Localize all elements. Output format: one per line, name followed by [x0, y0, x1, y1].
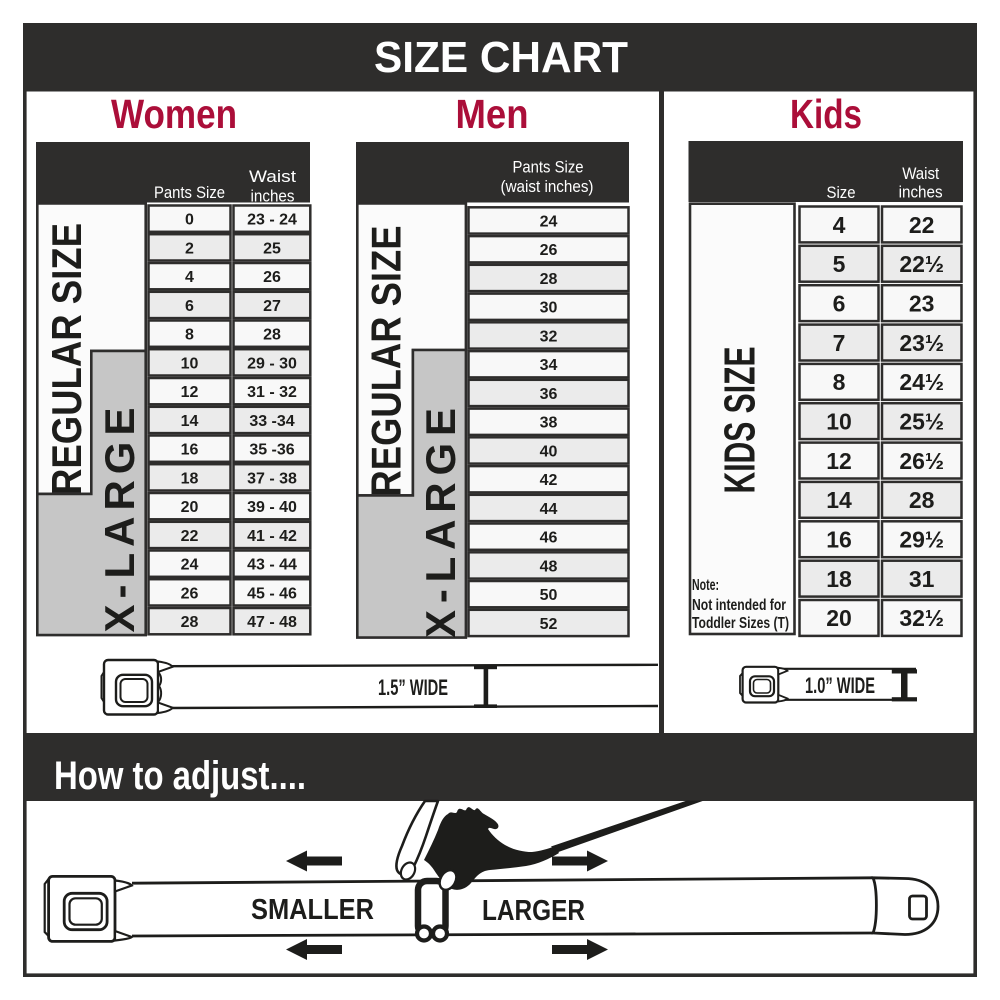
svg-text:26: 26: [181, 585, 199, 602]
svg-text:34: 34: [540, 357, 558, 374]
svg-text:REGULAR SIZE: REGULAR SIZE: [363, 226, 410, 497]
svg-text:16: 16: [826, 527, 852, 553]
svg-text:6: 6: [185, 298, 194, 315]
svg-text:Men: Men: [456, 91, 529, 137]
svg-text:46: 46: [540, 530, 558, 547]
svg-text:inches: inches: [251, 187, 295, 206]
svg-text:25: 25: [263, 240, 281, 257]
svg-text:LARGER: LARGER: [482, 895, 585, 927]
svg-text:Waist: Waist: [249, 167, 296, 186]
svg-text:52: 52: [540, 616, 558, 633]
svg-text:Pants Size: Pants Size: [513, 158, 584, 177]
svg-text:23 - 24: 23 - 24: [247, 212, 297, 229]
svg-text:43 - 44: 43 - 44: [247, 557, 297, 574]
svg-text:Not intended for: Not intended for: [692, 597, 786, 614]
svg-text:12: 12: [826, 448, 852, 474]
svg-text:23½: 23½: [899, 330, 944, 356]
svg-text:18: 18: [181, 470, 199, 487]
svg-text:0: 0: [185, 212, 194, 229]
svg-text:1.0” WIDE: 1.0” WIDE: [805, 673, 875, 698]
svg-text:27: 27: [263, 298, 281, 315]
svg-text:7: 7: [833, 330, 846, 356]
svg-text:31: 31: [909, 566, 935, 592]
svg-text:29½: 29½: [899, 527, 944, 553]
svg-text:22: 22: [181, 528, 199, 545]
svg-text:10: 10: [181, 355, 199, 372]
svg-text:36: 36: [540, 386, 558, 403]
svg-text:4: 4: [833, 212, 846, 238]
svg-text:38: 38: [540, 415, 558, 432]
svg-text:28: 28: [181, 614, 199, 631]
svg-text:48: 48: [540, 558, 558, 575]
svg-text:26: 26: [540, 242, 558, 259]
svg-text:39 - 40: 39 - 40: [247, 499, 297, 516]
svg-text:Waist: Waist: [902, 164, 939, 183]
svg-text:22½: 22½: [899, 251, 944, 277]
svg-text:30: 30: [540, 300, 558, 317]
svg-text:14: 14: [181, 413, 199, 430]
svg-text:6: 6: [833, 290, 846, 316]
svg-text:20: 20: [826, 605, 852, 631]
svg-text:18: 18: [826, 566, 852, 592]
svg-text:41 - 42: 41 - 42: [247, 528, 297, 545]
svg-text:inches: inches: [899, 183, 943, 202]
svg-text:24½: 24½: [899, 369, 944, 395]
svg-text:12: 12: [181, 384, 199, 401]
svg-text:Women: Women: [111, 91, 237, 137]
svg-text:How to adjust....: How to adjust....: [54, 754, 306, 798]
svg-text:35 -36: 35 -36: [249, 442, 294, 459]
svg-text:KIDS SIZE: KIDS SIZE: [716, 347, 765, 494]
svg-text:44: 44: [540, 501, 558, 518]
svg-text:1.5” WIDE: 1.5” WIDE: [378, 675, 448, 700]
svg-text:(waist inches): (waist inches): [501, 177, 594, 196]
svg-text:Note:: Note:: [692, 577, 719, 594]
svg-text:24: 24: [540, 214, 558, 231]
svg-text:23: 23: [909, 290, 935, 316]
svg-text:SMALLER: SMALLER: [251, 894, 374, 926]
svg-text:42: 42: [540, 472, 558, 489]
svg-text:25½: 25½: [899, 409, 944, 435]
svg-text:SIZE CHART: SIZE CHART: [374, 33, 628, 82]
svg-text:26½: 26½: [899, 448, 944, 474]
svg-text:Kids: Kids: [790, 91, 862, 137]
svg-text:26: 26: [263, 269, 281, 286]
svg-text:32: 32: [540, 328, 558, 345]
svg-text:32½: 32½: [899, 605, 944, 631]
svg-text:14: 14: [826, 487, 852, 513]
svg-text:10: 10: [826, 409, 852, 435]
svg-text:5: 5: [833, 251, 846, 277]
svg-text:29 - 30: 29 - 30: [247, 355, 297, 372]
svg-text:22: 22: [909, 212, 935, 238]
svg-text:2: 2: [185, 240, 194, 257]
svg-text:16: 16: [181, 442, 199, 459]
svg-text:Pants Size: Pants Size: [154, 183, 225, 202]
svg-text:31 - 32: 31 - 32: [247, 384, 297, 401]
svg-text:40: 40: [540, 443, 558, 460]
svg-text:28: 28: [540, 271, 558, 288]
svg-text:33 -34: 33 -34: [249, 413, 294, 430]
svg-text:Toddler Sizes (T): Toddler Sizes (T): [692, 615, 789, 632]
svg-text:28: 28: [263, 327, 281, 344]
svg-text:47 - 48: 47 - 48: [247, 614, 297, 631]
svg-text:20: 20: [181, 499, 199, 516]
svg-text:37 - 38: 37 - 38: [247, 470, 297, 487]
svg-text:28: 28: [909, 487, 935, 513]
svg-text:4: 4: [185, 269, 194, 286]
svg-text:Size: Size: [827, 183, 856, 202]
svg-text:8: 8: [833, 369, 846, 395]
svg-text:8: 8: [185, 327, 194, 344]
svg-text:50: 50: [540, 587, 558, 604]
svg-text:24: 24: [181, 557, 199, 574]
svg-text:45 - 46: 45 - 46: [247, 585, 297, 602]
svg-text:REGULAR SIZE: REGULAR SIZE: [43, 223, 90, 495]
